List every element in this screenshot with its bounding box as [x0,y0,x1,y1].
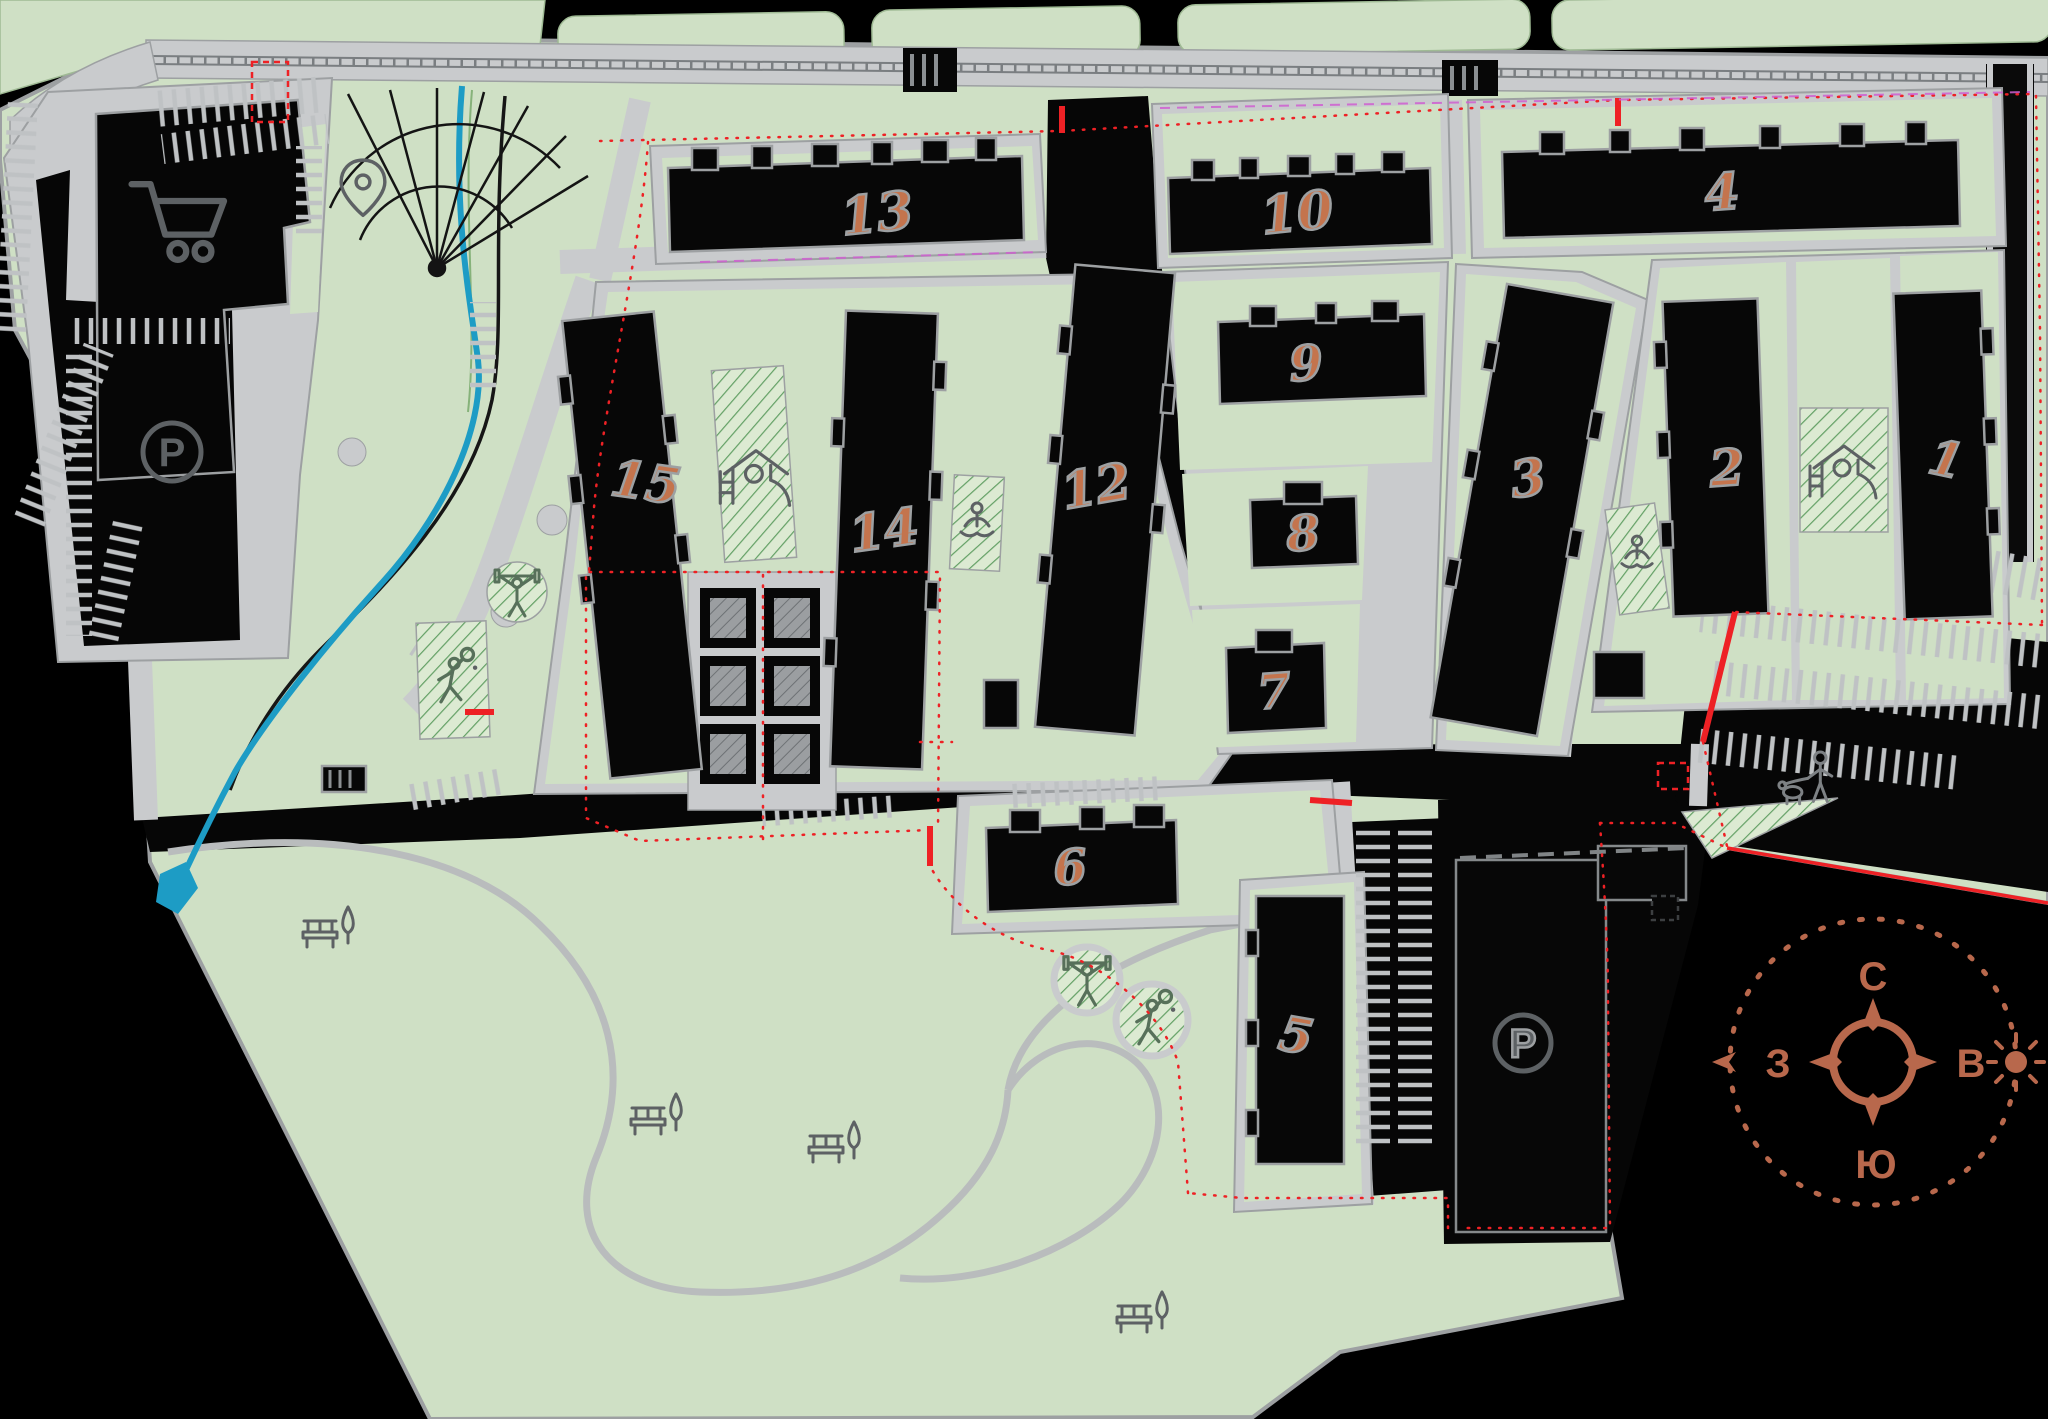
sun-icon [1988,1034,2044,1090]
building-label-9[interactable]: 9 [1287,335,1324,393]
service-building [322,766,366,792]
service-building [984,680,1018,728]
building-label-7[interactable]: 7 [1255,663,1292,721]
building-label-4[interactable]: 4 [1703,161,1742,222]
building-5[interactable]: 5 [1246,896,1344,1164]
bus-stop [903,48,957,92]
service-building [1594,652,1644,698]
compass-east-label: В [1957,1042,1986,1086]
building-label-8[interactable]: 8 [1283,505,1321,563]
compass-south-label: Ю [1855,1143,1896,1187]
building-label-2[interactable]: 2 [1707,437,1747,498]
masterplan-svg: P [0,0,2048,1419]
building-10[interactable]: 10 [1168,152,1432,254]
building-label-12[interactable]: 12 [1057,451,1136,521]
parking-letter: P [1510,1022,1537,1066]
playground-area [1800,408,1888,532]
building-label-15[interactable]: 15 [607,448,684,516]
building-6[interactable]: 6 [986,805,1178,912]
mall-block: P [4,78,332,662]
volleyball-area [416,621,490,739]
building-9[interactable]: 9 [1218,301,1426,404]
sports-area [1116,984,1188,1056]
building-label-14[interactable]: 14 [845,496,922,564]
building-label-13[interactable]: 13 [838,180,916,248]
building-label-6[interactable]: 6 [1051,839,1088,897]
bus-stop [1442,60,1498,96]
service-building [1652,896,1678,920]
compass-west-label: З [1765,1042,1790,1086]
masterplan-map: P [0,0,2048,1419]
parking-letter: P [159,431,186,475]
building-label-10[interactable]: 10 [1258,179,1336,247]
compass-north-label: С [1859,955,1888,999]
